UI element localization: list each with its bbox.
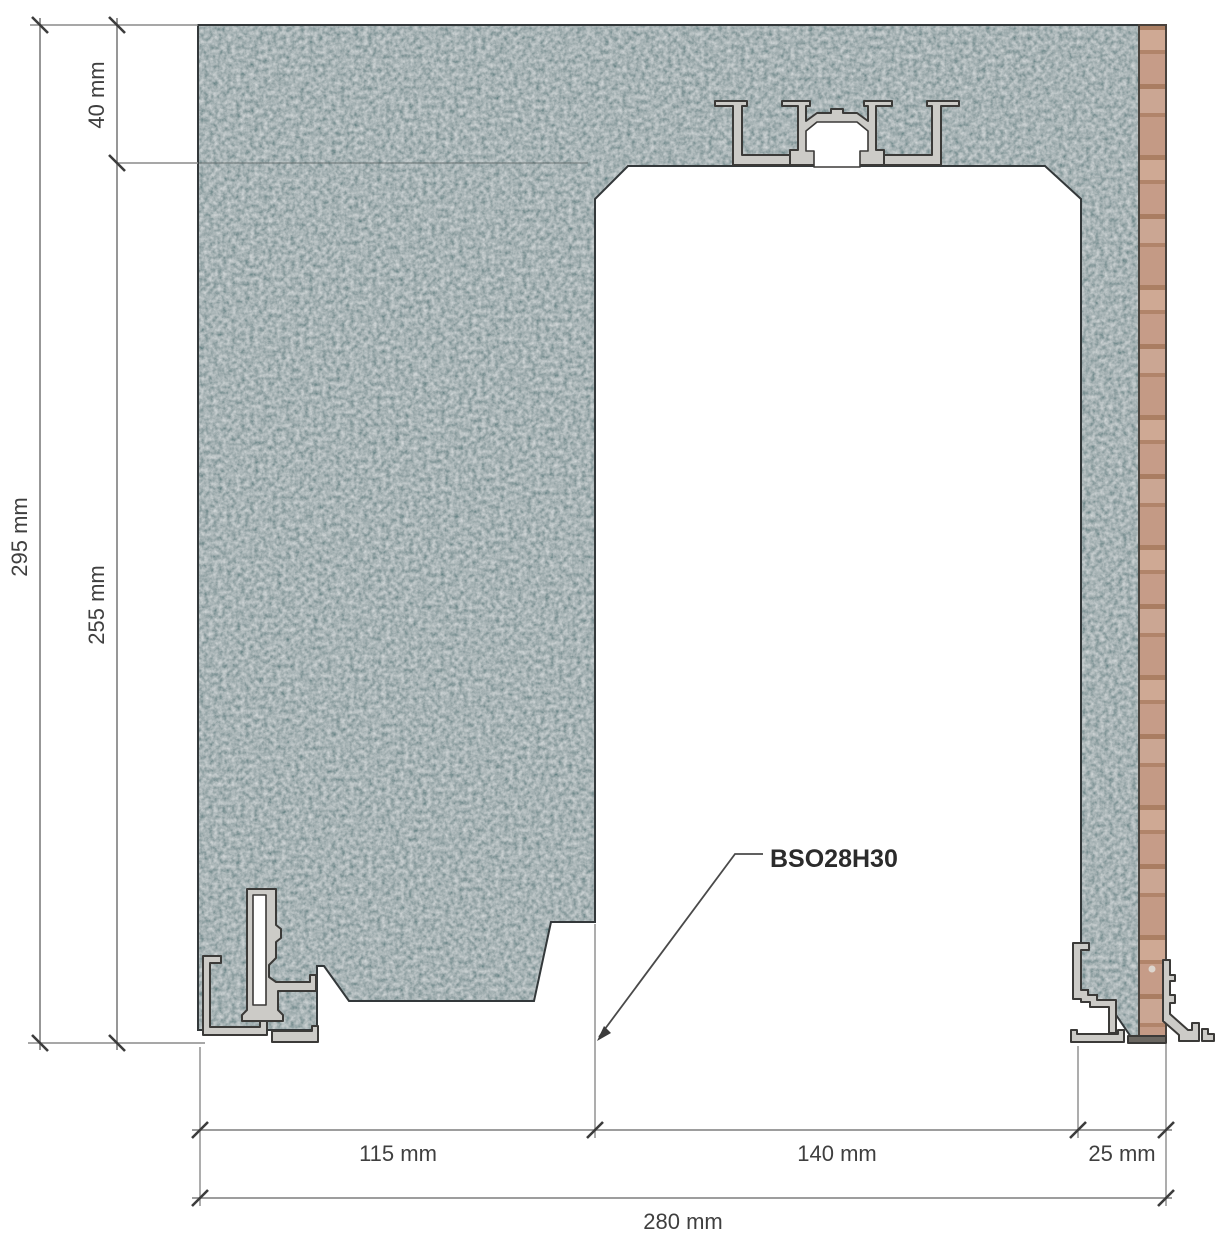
- product-label: BSO28H30: [770, 845, 898, 873]
- dim-label-255: 255 mm: [84, 565, 109, 644]
- technical-drawing-page: 40 mm 295 mm 255 mm 115 mm 140 mm 25 mm …: [0, 0, 1217, 1255]
- section-drawing: 40 mm 295 mm 255 mm 115 mm 140 mm 25 mm …: [0, 0, 1217, 1255]
- dim-label-40: 40 mm: [84, 61, 109, 128]
- leader-arrowhead-icon: [597, 1026, 611, 1041]
- wood-panel: [1139, 25, 1166, 1037]
- dim-label-280: 280 mm: [643, 1209, 722, 1234]
- sill-drip-profile: [1163, 960, 1199, 1041]
- dim-label-115: 115 mm: [359, 1141, 437, 1166]
- dim-label-140: 140 mm: [797, 1141, 876, 1166]
- insulation-speckle-texture: [190, 18, 1145, 1048]
- insulation-section: [190, 18, 1145, 1048]
- sill-end-clip: [1202, 1029, 1214, 1041]
- leader-line: [599, 854, 763, 1037]
- panel-bottom-bar: [1128, 1036, 1166, 1043]
- dim-label-25: 25 mm: [1088, 1141, 1155, 1166]
- dim-label-295: 295 mm: [7, 497, 32, 576]
- floor-guide-blade-cavity: [253, 895, 266, 1005]
- top-track-cavity: [806, 122, 868, 167]
- fixing-screw-dot: [1149, 966, 1156, 973]
- callout: BSO28H30: [597, 845, 898, 1041]
